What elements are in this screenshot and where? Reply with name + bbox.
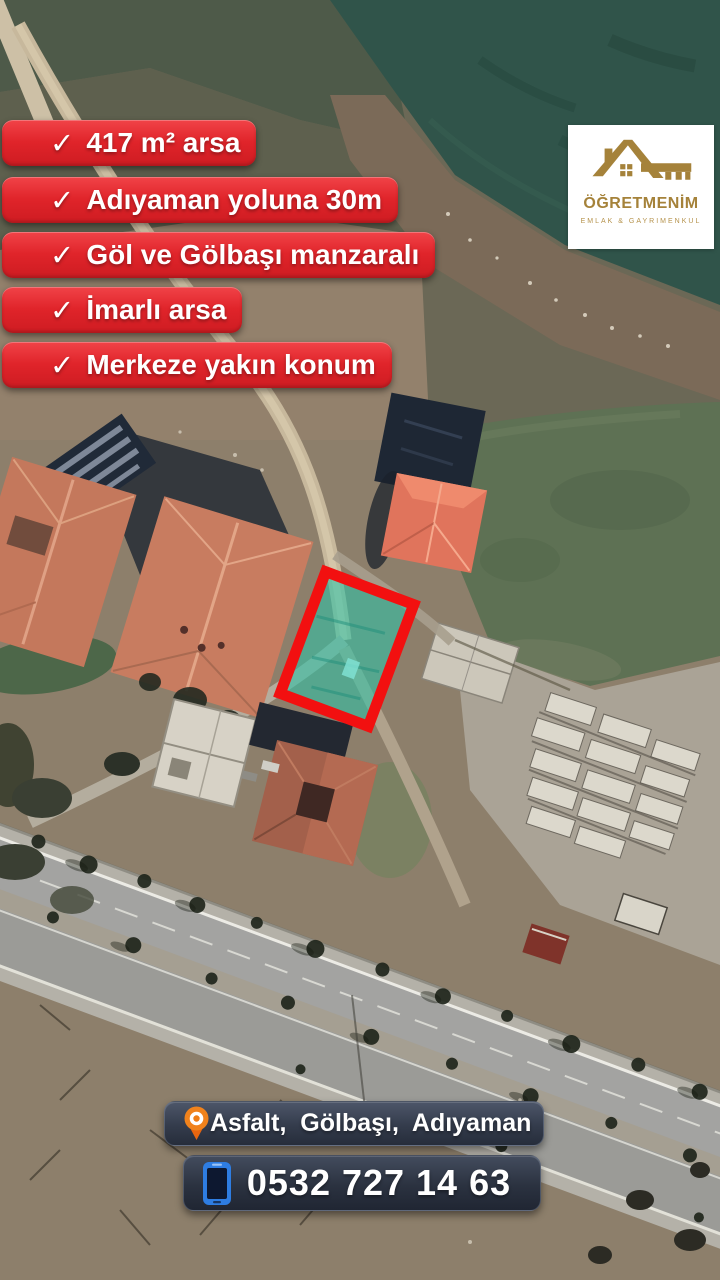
check-icon: ✓ <box>50 238 74 273</box>
coral-roof-house <box>381 473 487 573</box>
feature-banner-view: ✓ Göl ve Gölbaşı manzaralı <box>2 232 435 278</box>
house-key-icon <box>589 138 693 192</box>
banner-label: Adıyaman yoluna 30m <box>86 184 382 216</box>
listing-image: ✓ 417 m² arsa ✓ Adıyaman yoluna 30m ✓ Gö… <box>0 0 720 1280</box>
check-icon: ✓ <box>50 183 74 218</box>
location-bar: Asfalt, Gölbaşı, Adıyaman <box>164 1101 544 1146</box>
feature-banner-area: ✓ 417 m² arsa <box>2 120 256 166</box>
check-icon: ✓ <box>50 126 74 161</box>
map-pin-icon <box>183 1106 210 1142</box>
phone-bar: 0532 727 14 63 <box>183 1155 541 1211</box>
agency-logo-card: ÖĞRETMENİM EMLAK & GAYRIMENKUL <box>568 125 714 249</box>
phone-number: 0532 727 14 63 <box>232 1162 540 1204</box>
agency-name: ÖĞRETMENİM <box>583 195 698 213</box>
banner-label: Göl ve Gölbaşı manzaralı <box>86 239 419 271</box>
location-label: Asfalt, Gölbaşı, Adıyaman <box>210 1109 545 1138</box>
agency-subtitle: EMLAK & GAYRIMENKUL <box>581 218 702 225</box>
banner-label: 417 m² arsa <box>86 127 240 159</box>
banner-label: Merkeze yakın konum <box>86 349 375 381</box>
check-icon: ✓ <box>50 348 74 383</box>
feature-banner-center: ✓ Merkeze yakın konum <box>2 342 392 388</box>
feature-banner-zoning: ✓ İmarlı arsa <box>2 287 242 333</box>
banner-label: İmarlı arsa <box>86 294 226 326</box>
smartphone-icon <box>202 1161 232 1206</box>
check-icon: ✓ <box>50 293 74 328</box>
feature-banner-road: ✓ Adıyaman yoluna 30m <box>2 177 398 223</box>
